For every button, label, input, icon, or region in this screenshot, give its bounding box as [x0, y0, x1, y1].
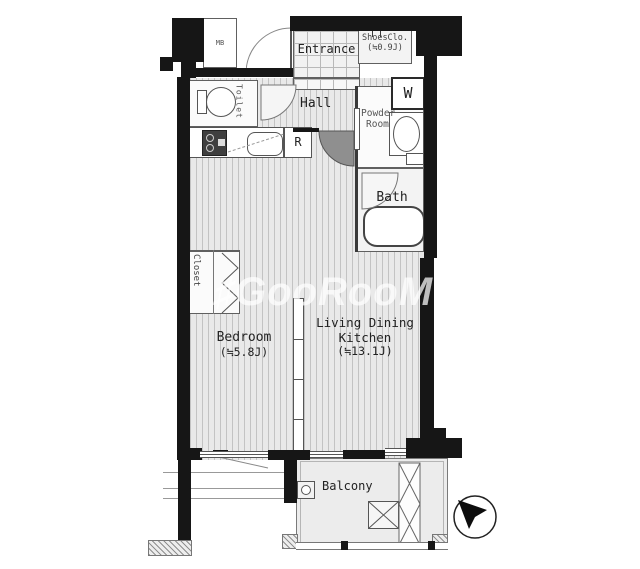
wall: [177, 77, 190, 460]
north-arrow-icon: [450, 491, 500, 543]
mb-label: MB: [203, 39, 237, 47]
balcony-faucet: [297, 481, 315, 499]
bedroom-label: Bedroom (≒5.8J): [202, 330, 286, 359]
stove: [202, 130, 227, 156]
wall: [290, 16, 462, 31]
powder-line1: Powder: [361, 108, 395, 119]
entrance-step: [293, 78, 360, 90]
pillar-base-hatch: [148, 540, 192, 556]
powder-shelf: [406, 153, 424, 165]
ac-outdoor-unit: [367, 500, 400, 530]
counter-edge-dash: [226, 130, 286, 158]
bathtub: [363, 206, 425, 247]
bedroom-window: [200, 451, 268, 458]
toilet-label: Toilet: [234, 84, 244, 128]
partition-track-mark: [294, 379, 303, 380]
watermark: ♯GooRooM: [214, 270, 433, 315]
wall: [193, 68, 293, 77]
partition-track-mark: [294, 419, 303, 420]
balcony-door-glass: [310, 451, 343, 458]
wall: [160, 57, 173, 71]
shoes-closet-label: ShoesClo. (≒0.9J): [356, 33, 414, 53]
burner: [206, 144, 214, 152]
bedroom-size: (≒5.8J): [202, 346, 286, 360]
refrigerator-label: R: [284, 135, 312, 149]
hall-label: Hall: [300, 96, 331, 112]
ldk-line1: Living Dining: [310, 315, 420, 330]
toilet-bowl: [206, 87, 236, 117]
balcony-partition-panel: [398, 462, 421, 546]
ldk-size: (≒13.1J): [310, 345, 420, 359]
floor-plan: MB Entrance ShoesClo. (≒0.9J) Toilet Hal…: [0, 0, 640, 569]
balcony-door-glass: [385, 448, 406, 456]
wall: [284, 460, 297, 503]
wall: [268, 450, 310, 460]
wall: [343, 450, 385, 459]
shoes-closet-name: ShoesClo.: [356, 33, 414, 43]
burner: [206, 134, 214, 142]
wall: [406, 438, 462, 458]
powder-room-label: Powder Room: [361, 108, 395, 131]
rail-post: [341, 541, 348, 550]
sliding-partition: [293, 298, 304, 456]
bedroom-name: Bedroom: [202, 330, 286, 346]
toilet-door-arc: [258, 83, 300, 123]
ldk-label: Living Dining Kitchen (≒13.1J): [310, 315, 420, 359]
wall: [172, 18, 204, 62]
bath-label: Bath: [366, 190, 418, 206]
wall: [293, 128, 319, 132]
ldk-line2: Kitchen: [310, 330, 420, 345]
closet-label: Closet: [190, 254, 201, 312]
burner: [218, 139, 225, 146]
wall: [178, 460, 191, 540]
faucet-circle: [301, 485, 311, 495]
partition-track-mark: [294, 339, 303, 340]
wall: [420, 428, 446, 438]
wall: [416, 31, 462, 56]
entrance-label: Entrance: [293, 42, 360, 56]
washing-machine-label: W: [391, 84, 425, 102]
rail-post: [428, 541, 435, 550]
shoes-closet-size: (≒0.9J): [356, 43, 414, 53]
wall: [424, 56, 437, 258]
ldk-door-arc: [316, 128, 356, 168]
powder-line2: Room: [361, 119, 395, 130]
powder-basin: [393, 116, 420, 152]
balcony-rail: [296, 542, 448, 550]
balcony-label: Balcony: [322, 479, 373, 493]
